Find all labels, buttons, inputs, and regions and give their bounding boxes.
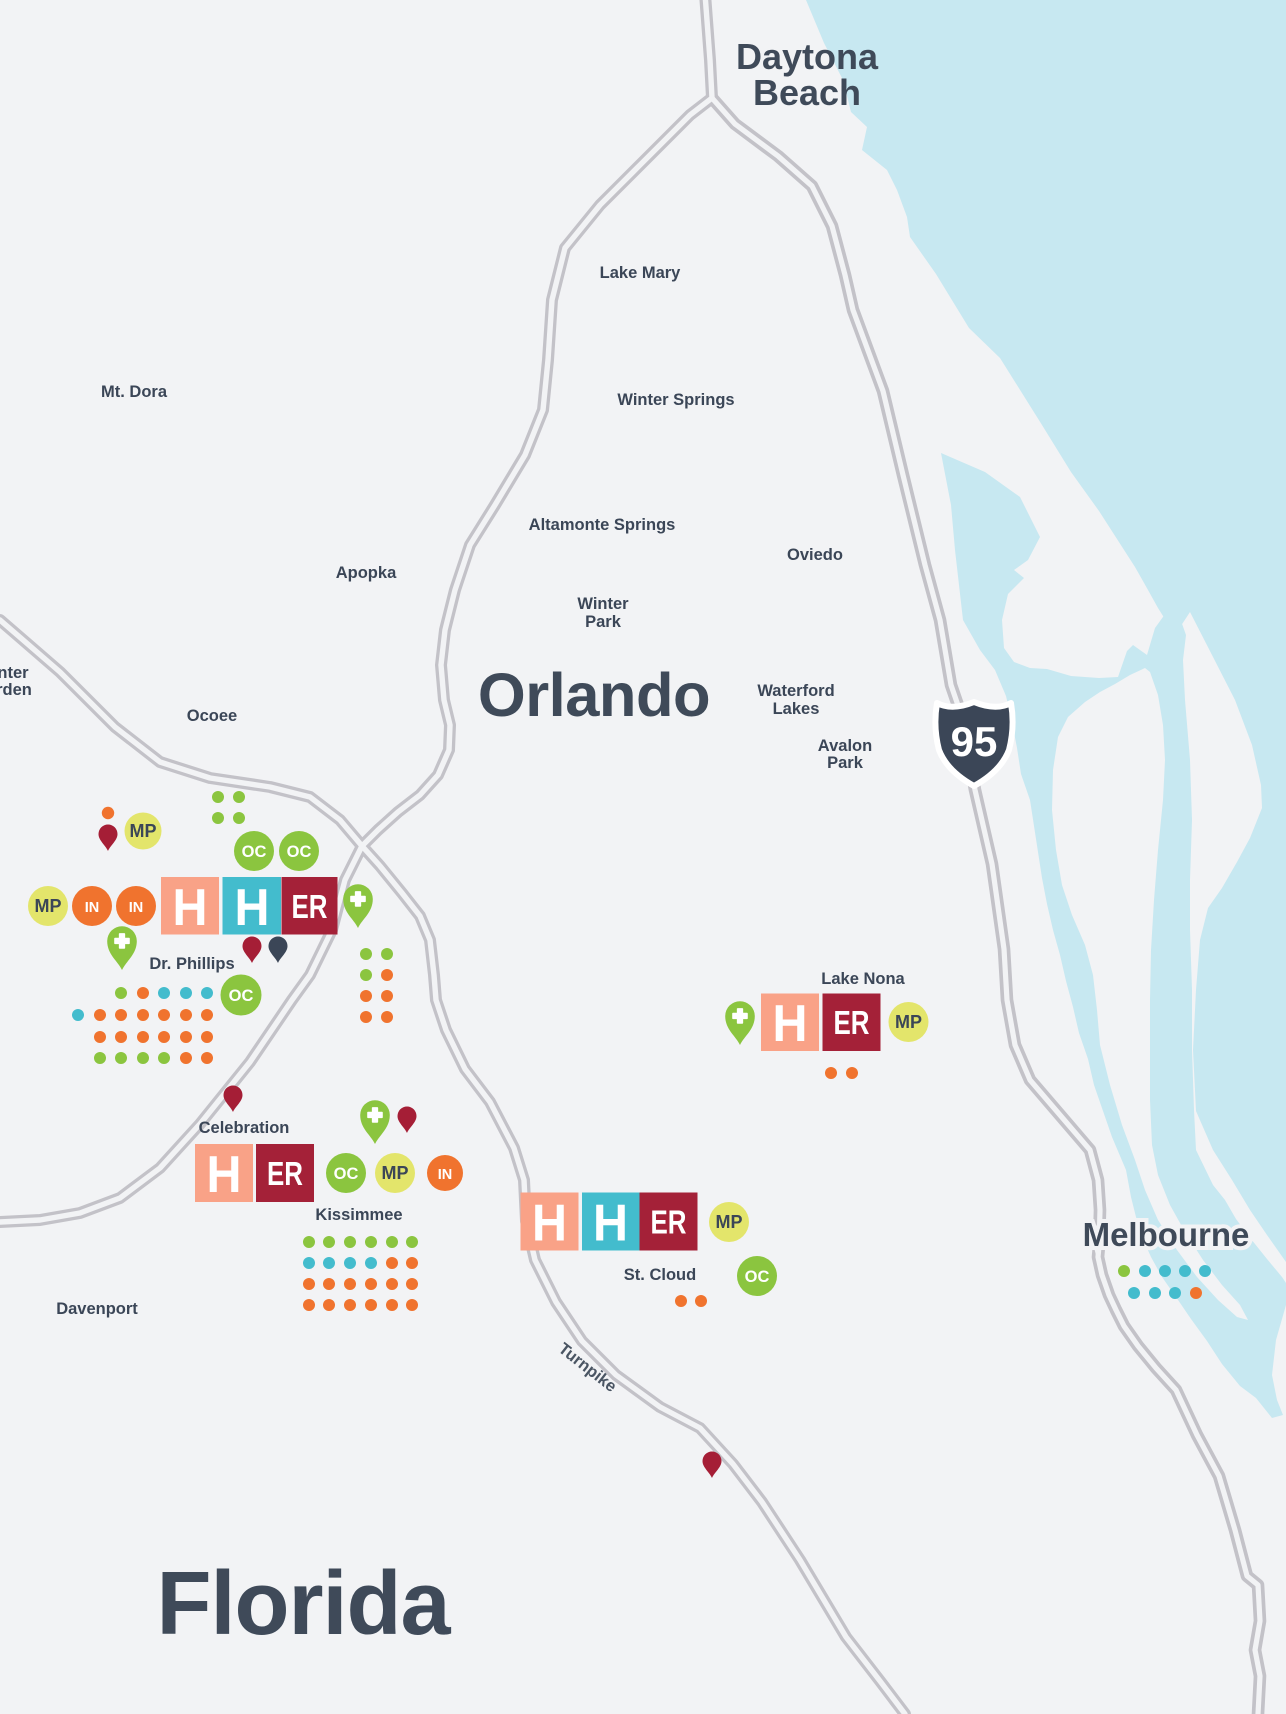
svg-text:IN: IN [438,1167,453,1183]
svg-text:OC: OC [745,1268,770,1286]
svg-text:Dr. Phillips: Dr. Phillips [149,955,234,973]
svg-text:MP: MP [130,821,157,841]
svg-text:OC: OC [229,987,254,1005]
svg-text:Oviedo: Oviedo [787,546,843,564]
svg-text:OC: OC [242,843,267,861]
svg-text:St. Cloud: St. Cloud [624,1266,696,1284]
svg-text:Park: Park [827,754,864,772]
svg-text:H: H [773,995,808,1053]
svg-text:ER: ER [651,1204,687,1241]
svg-text:H: H [235,879,270,937]
svg-text:Davenport: Davenport [56,1300,138,1318]
svg-text:Park: Park [585,613,622,631]
svg-text:Apopka: Apopka [336,564,397,582]
svg-text:ER: ER [292,888,328,925]
svg-text:MP: MP [382,1163,409,1183]
svg-text:H: H [173,879,208,937]
svg-text:Ocoee: Ocoee [187,707,237,725]
svg-text:Lake Mary: Lake Mary [600,264,682,282]
svg-text:MP: MP [716,1212,743,1232]
svg-text:Melbourne: Melbourne [1083,1216,1250,1253]
svg-text:H: H [207,1146,242,1204]
svg-text:Mt. Dora: Mt. Dora [101,383,168,401]
svg-text:95: 95 [951,718,998,765]
svg-text:Kissimmee: Kissimmee [315,1206,402,1224]
svg-text:OC: OC [334,1165,359,1183]
svg-text:Avalon: Avalon [818,737,872,755]
svg-text:Altamonte Springs: Altamonte Springs [529,516,676,534]
svg-text:Lake Nona: Lake Nona [821,970,905,988]
svg-text:Florida: Florida [156,1554,451,1654]
svg-text:MP: MP [35,896,62,916]
svg-text:Orlando: Orlando [478,661,710,730]
svg-text:Waterford: Waterford [757,682,834,700]
svg-text:ER: ER [267,1155,303,1192]
svg-text:Winter Springs: Winter Springs [617,391,734,409]
svg-text:Daytona: Daytona [736,36,879,77]
svg-text:Winter: Winter [0,664,29,682]
svg-text:MP: MP [895,1012,922,1032]
svg-text:H: H [593,1195,628,1253]
svg-text:Beach: Beach [753,72,861,113]
svg-text:Garden: Garden [0,681,32,699]
svg-text:Celebration: Celebration [199,1119,290,1137]
svg-text:IN: IN [129,900,144,916]
svg-text:Lakes: Lakes [773,700,820,718]
svg-text:H: H [532,1195,567,1253]
svg-text:IN: IN [85,900,100,916]
svg-text:ER: ER [834,1004,870,1041]
svg-text:Winter: Winter [577,595,629,613]
svg-text:OC: OC [287,843,312,861]
